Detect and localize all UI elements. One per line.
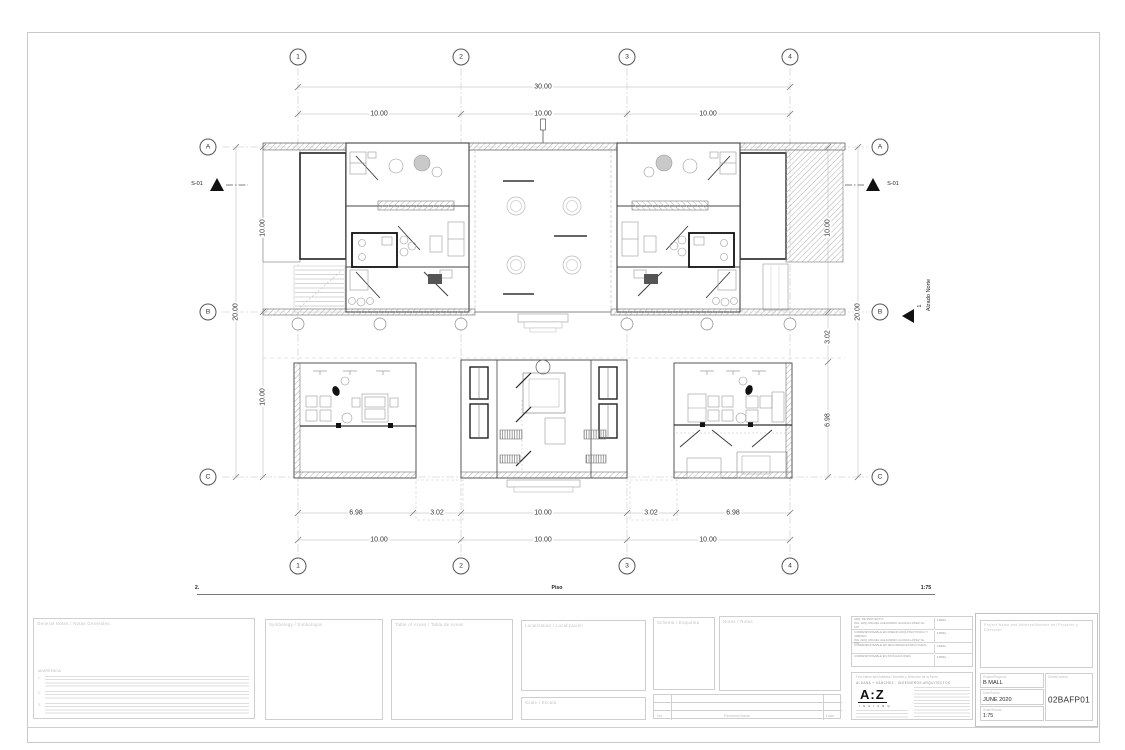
notes-item-2-number: 2.: [38, 691, 41, 695]
section-marker-left-label: S-01: [191, 181, 203, 187]
project-date-box: Date/Fecha JUNE 2020: [980, 689, 1044, 705]
plan-number-label: 2.: [195, 585, 199, 591]
grid-bubble-row-b-left: B: [200, 304, 217, 321]
professional-row: CORRESPONSABLE EN INSTALACIONES: FIRMA: [852, 654, 972, 666]
grid-bubble-row-b-right: B: [872, 304, 889, 321]
unit-right: [617, 143, 740, 312]
areas-title: Table of Areas / Tabla de Areas: [395, 622, 463, 627]
symbology-title: Symbology / Simbología: [269, 622, 322, 627]
grid-bubble-col-3-bottom: 3: [619, 558, 636, 575]
titleblock-scale-box: Scale / Escala: [521, 697, 646, 720]
notes-item-1-number: 1.: [38, 676, 41, 680]
plan-title-underline: [197, 594, 935, 595]
professional-row: CORRESPONSABLE EN DISEÑO ARQUITECTÓNICO …: [852, 630, 972, 643]
dim-bottom-outer-1: 10.00: [369, 537, 389, 544]
firm-contact-lines: [856, 710, 908, 718]
dim-right-2: 20.00: [855, 302, 862, 322]
lower-center-block: [461, 360, 627, 492]
stairs: [294, 266, 345, 312]
grid-bubble-col-1: 1: [290, 49, 307, 66]
revision-col-issue: Revision/Issue: [724, 713, 750, 718]
firm-logo-subtext: I N G I A R Q: [859, 704, 891, 708]
project-header: Project Name and Address/Nombre del Proy…: [984, 623, 1092, 632]
section-marker-right-label: S-01: [887, 181, 899, 187]
titleblock-general-notes: General Notes / Notas Generales ADVERTEN…: [33, 618, 255, 719]
localization-title: Localization / Localización: [525, 623, 583, 628]
dim-top-2: 10.00: [533, 111, 553, 118]
dim-bottom-inner-5: 6.98: [725, 510, 741, 517]
firm-logo: A:Z: [858, 687, 887, 703]
revision-col-date: Date: [826, 713, 834, 718]
plan-title-label: Piso: [552, 585, 563, 591]
grid-bubble-row-a-right: A: [872, 139, 889, 156]
date-label: Date/Fecha: [983, 691, 999, 695]
project-block-outer: Project Name and Address/Nombre del Proy…: [975, 613, 1098, 727]
grid-bubble-col-2: 2: [453, 49, 470, 66]
project-sheet-box: Sheet/Lámina 02BAFP01: [1045, 673, 1093, 721]
titleblock-symbology: Symbology / Simbología: [265, 619, 383, 720]
notes2-title: Notes / Notas: [723, 619, 753, 624]
project-header-box: Project Name and Address/Nombre del Proy…: [980, 620, 1093, 668]
notes-item-3-number: 3.: [38, 703, 41, 707]
schema-title: Schema / Esquema: [657, 620, 699, 625]
firm-block: Firm Name and Address / Nombre y Direcci…: [851, 672, 973, 720]
firma-cell: FIRMA: [934, 618, 970, 630]
dim-bottom-outer-3: 10.00: [698, 537, 718, 544]
grid-bubble-col-1-bottom: 1: [290, 558, 307, 575]
firm-address-lines: [914, 687, 970, 717]
sheet-number: 02BAFP01: [1048, 696, 1090, 705]
titleblock-schema: Schema / Esquema: [653, 617, 715, 690]
porch: [263, 309, 845, 358]
lower-right-block: [674, 363, 792, 478]
grid-bubble-row-c-left: C: [200, 469, 217, 486]
notes-warning: ADVERTENCIA:: [38, 669, 62, 673]
titleblock-localization: Localization / Localización: [521, 620, 646, 691]
grid-bubble-row-c-right: C: [872, 469, 889, 486]
scale-box-title: Scale / Escala: [525, 700, 556, 705]
dim-right-1: 10.00: [825, 218, 832, 238]
drawing-sheet: 1 2 3 4 1 2 3 4 A B C A B C 30.00 10.00 …: [0, 0, 1125, 750]
revision-table: No. Revision/Issue Date: [653, 694, 841, 719]
project-name-box: Project/Proyecto B MALL: [980, 673, 1044, 688]
sheet-label: Sheet/Lámina: [1048, 675, 1068, 679]
dim-left-1: 10.00: [260, 218, 267, 238]
revision-col-no: No.: [657, 713, 663, 718]
dim-top-total: 30.00: [533, 84, 553, 91]
dim-bottom-inner-3: 10.00: [533, 510, 553, 517]
dim-bottom-outer-2: 10.00: [533, 537, 553, 544]
grid-bubble-col-3: 3: [619, 49, 636, 66]
dim-left-2: 20.00: [233, 302, 240, 322]
dim-left-3: 10.00: [260, 387, 267, 407]
date-value: JUNE 2020: [983, 697, 1012, 703]
elevation-marker-number: 1: [917, 304, 923, 307]
firma-cell: FIRMA: [934, 631, 970, 643]
dim-bottom-inner-1: 6.98: [348, 510, 364, 517]
project-scale-box: Scale/Escala 1:75: [980, 706, 1044, 721]
scale-label: Scale/Escala: [983, 708, 1001, 712]
elevation-marker-label: Alzado Norte: [926, 279, 932, 311]
firma-cell: FIRMA: [934, 655, 970, 667]
project-label: Project/Proyecto: [983, 675, 1006, 679]
firma-cell: FIRMA: [934, 644, 970, 654]
dim-bottom-inner-2: 3.02: [429, 510, 445, 517]
dim-top-3: 10.00: [698, 111, 718, 118]
dim-right-4: 6.98: [825, 412, 832, 428]
titleblock-notes2: Notes / Notas: [719, 616, 841, 691]
titleblock-areas: Table of Areas / Tabla de Areas: [391, 619, 513, 720]
firm-header: Firm Name and Address / Nombre y Direcci…: [856, 675, 938, 679]
lower-left-block: [294, 363, 416, 478]
grid-bubble-col-2-bottom: 2: [453, 558, 470, 575]
notes-paragraph-2: [45, 691, 249, 700]
plan-scale-label: 1:75: [921, 585, 931, 591]
dim-bottom-inner-4: 3.02: [643, 510, 659, 517]
courtyard: [475, 150, 611, 309]
professionals-block: ARQ. DE PROYECTO: ING. ARQ. MIGUEL ALEJA…: [851, 616, 973, 667]
scale-value: 1:75: [983, 713, 993, 719]
notes-paragraph-3: [45, 703, 249, 714]
project-value: B MALL: [983, 680, 1003, 686]
general-notes-title: General Notes / Notas Generales: [37, 621, 110, 626]
dim-right-3: 3.02: [825, 329, 832, 345]
grid-bubble-row-a-left: A: [200, 139, 217, 156]
dim-top-1: 10.00: [369, 111, 389, 118]
professional-row: CORRESPONSABLE EN SEGURIDAD ESTRUCTURAL:…: [852, 643, 972, 654]
grid-bubble-col-4-bottom: 4: [782, 558, 799, 575]
grid-bubble-col-4: 4: [782, 49, 799, 66]
notes-paragraph-1: [45, 676, 249, 688]
professional-row: ARQ. DE PROYECTO: ING. ARQ. MIGUEL ALEJA…: [852, 617, 972, 630]
unit-left: [346, 143, 469, 312]
firm-name: ALDANA + SÁNCHEZ - INGENIEROS ARQUITECTO…: [856, 681, 950, 685]
